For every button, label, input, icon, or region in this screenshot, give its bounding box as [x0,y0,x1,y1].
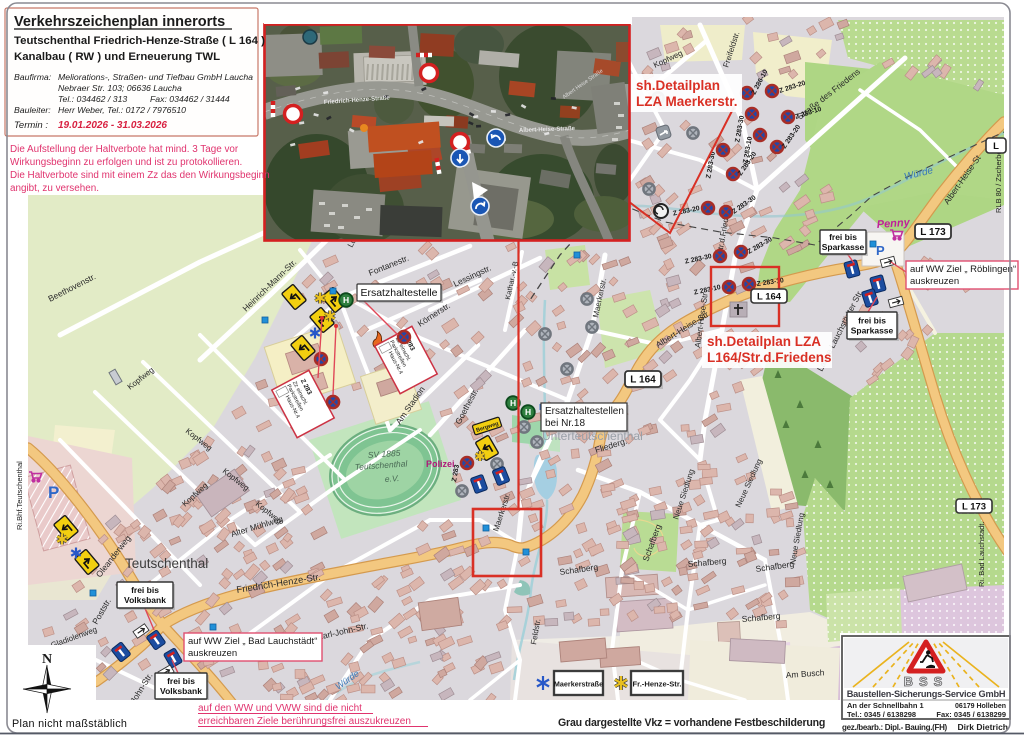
svg-text:L 164: L 164 [757,291,782,302]
svg-text:Ri. Bad Lauchstadt.: Ri. Bad Lauchstadt. [977,522,986,587]
svg-text:Ersatzhaltestelle: Ersatzhaltestelle [360,287,437,299]
svg-text:Termin :: Termin : [14,120,48,131]
svg-text:N: N [42,652,52,667]
svg-text:bei Nr.18: bei Nr.18 [545,418,585,429]
svg-text:Maerkerstraße: Maerkerstraße [554,680,603,689]
svg-text:Bauleiter:: Bauleiter: [14,105,51,115]
svg-text:Baufirma:: Baufirma: [14,72,52,82]
svg-text:frei bis: frei bis [131,585,159,595]
svg-text:erreichbaren Ziele berührungsf: erreichbaren Ziele berührungsfrei auszuk… [198,716,411,727]
svg-text:gez./bearb.: Dipl.- Bauing.(F: gez./bearb.: Dipl.- Bauing.(FH) [842,723,948,732]
svg-text:19.01.2026 - 31.03.2026: 19.01.2026 - 31.03.2026 [58,120,167,131]
svg-text:BSS: BSS [904,674,949,689]
svg-text:L 164: L 164 [630,375,656,386]
svg-text:Herr Weber, Tel.: 0172 / 7976: Herr Weber, Tel.: 0172 / 7976510 [58,105,186,115]
svg-text:Tel.: 034462 / 313: Tel.: 034462 / 313 [58,94,127,104]
svg-text:auskreuzen: auskreuzen [910,276,959,287]
svg-text:Dirk Dietrich: Dirk Dietrich [957,722,1008,732]
svg-text:LZA Maerkerstr.: LZA Maerkerstr. [636,94,738,109]
svg-text:Tel.: 0345 / 6138298: Tel.: 0345 / 6138298 [847,710,916,719]
svg-text:Ersatzhaltestellen: Ersatzhaltestellen [545,406,624,417]
svg-text:Wirkungsbeginn zu erfolgen und: Wirkungsbeginn zu erfolgen und ist zu pr… [10,157,242,168]
svg-text:sh.Detailplan LZA: sh.Detailplan LZA [707,334,821,349]
svg-text:RLB 80 / Zscherben: RLB 80 / Zscherben [994,146,1003,213]
svg-text:P: P [48,483,59,502]
svg-text:06179 Holleben: 06179 Holleben [955,703,1006,710]
svg-text:auskreuzen: auskreuzen [188,648,237,659]
svg-text:auf WW Ziel „ Bad Lauchstädt“: auf WW Ziel „ Bad Lauchstädt“ [188,636,317,647]
svg-text:Baustellen-Sicherungs-Service: Baustellen-Sicherungs-Service GmbH [847,689,1006,699]
svg-text:L 173: L 173 [920,227,946,238]
svg-text:frei bis: frei bis [167,676,195,686]
svg-text:Teutschenthal Friedrich-Henze-: Teutschenthal Friedrich-Henze-Straße ( L… [14,35,265,47]
svg-text:Volksbank: Volksbank [124,595,166,605]
svg-text:Die Haltverbote sind mit einem: Die Haltverbote sind mit einem Zz das de… [10,170,270,181]
svg-text:Fr.-Henze-Str.: Fr.-Henze-Str. [633,680,682,689]
svg-text:L164/Str.d.Friedens: L164/Str.d.Friedens [707,350,832,365]
svg-text:Fax: 0345 / 6138299: Fax: 0345 / 6138299 [936,710,1006,719]
svg-text:Teutschenthal: Teutschenthal [125,556,208,571]
svg-text:Grau dargestellte Vkz = vorhan: Grau dargestellte Vkz = vorhandene Festb… [558,717,825,729]
svg-text:Verkehrszeichenplan innerorts: Verkehrszeichenplan innerorts [14,14,225,30]
svg-text:Penny: Penny [876,217,911,231]
svg-text:sh.Detailplan: sh.Detailplan [636,78,720,93]
svg-text:Polizei: Polizei [426,459,455,469]
svg-text:L: L [993,141,999,152]
svg-text:Nebraer Str. 103; 06636 Lauch: Nebraer Str. 103; 06636 Laucha [58,83,182,93]
svg-text:Volksbank: Volksbank [160,686,202,696]
svg-text:Sparkasse: Sparkasse [851,325,894,335]
svg-text:Die Aufstellung der Haltverbot: Die Aufstellung der Haltverbote hat mind… [10,144,239,155]
svg-text:angibt, zu versehen.: angibt, zu versehen. [10,183,99,194]
svg-text:Sparkasse: Sparkasse [822,242,865,252]
svg-text:auf WW Ziel „ Röblingen“: auf WW Ziel „ Röblingen“ [910,264,1016,275]
svg-text:Kanalbau ( RW ) und Erneuerung: Kanalbau ( RW ) und Erneuerung TWL [14,51,220,63]
svg-text:P: P [876,243,885,258]
svg-text:Meliorations-, Straßen- und Ti: Meliorations-, Straßen- und Tiefbau GmbH… [58,72,253,82]
svg-text:Fax: 034462 / 31444: Fax: 034462 / 31444 [150,94,230,104]
svg-text:Ri.Bhf.Teutschenthal: Ri.Bhf.Teutschenthal [15,461,24,530]
svg-text:frei bis: frei bis [829,232,857,242]
svg-text:Plan nicht maßstäblich: Plan nicht maßstäblich [12,718,127,730]
svg-text:e.V.: e.V. [384,473,399,484]
svg-text:frei bis: frei bis [858,315,886,325]
svg-text:auf den WW und VWW sind die n: auf den WW und VWW sind die nicht [198,703,362,714]
svg-text:L 173: L 173 [962,501,986,512]
svg-text:An der Schnellbahn 1: An der Schnellbahn 1 [847,701,924,710]
